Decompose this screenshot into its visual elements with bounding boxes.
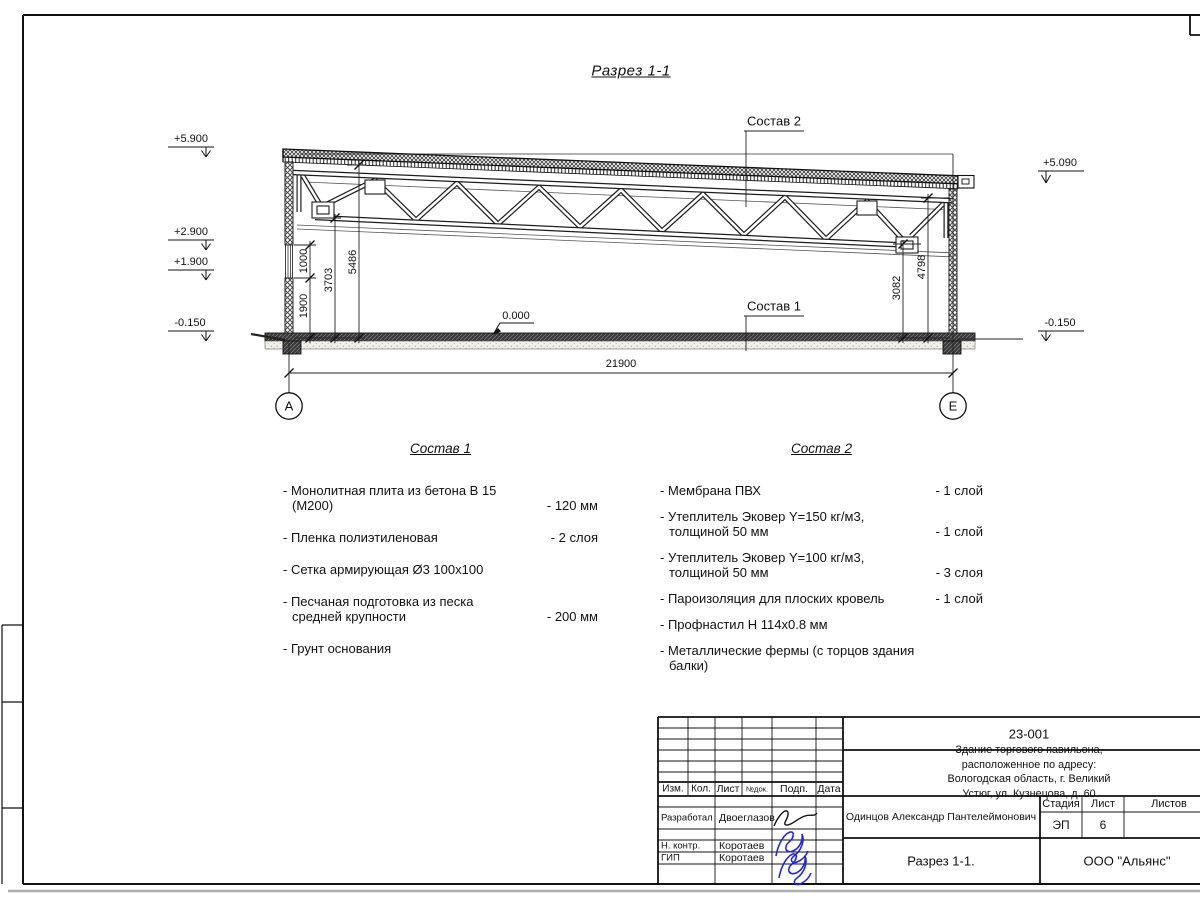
page-title: Разрез 1-1 bbox=[591, 63, 670, 80]
legend2-item: - Профнастил Н 114х0.8 мм bbox=[660, 617, 983, 632]
axis-bubbles bbox=[276, 393, 966, 419]
titleblock-col-list: Лист bbox=[717, 783, 740, 795]
composition2-callout: Состав 2 bbox=[747, 114, 801, 129]
titleblock-col-kol: Кол. bbox=[691, 784, 711, 795]
elevation-right-ground: -0.150 bbox=[1044, 317, 1075, 329]
axis-bubble-a-label: А bbox=[285, 399, 294, 414]
titleblock-author: Одинцов Александр Пантелеймонович bbox=[846, 811, 1036, 823]
titleblock-col-izm: Изм. bbox=[662, 784, 683, 795]
legend1-title: Состав 1 bbox=[283, 441, 598, 456]
titleblock-col-podp: Подп. bbox=[780, 783, 808, 795]
titleblock-sheets-label: Листов bbox=[1151, 798, 1187, 810]
titleblock-name-gip: Коротаев bbox=[719, 852, 764, 864]
titleblock-role-ncontrol: Н. контр. bbox=[661, 841, 700, 852]
signatures bbox=[774, 811, 817, 885]
legend-composition1: Состав 1 - Монолитная плита из бетона В … bbox=[283, 441, 598, 673]
titleblock-name-developer: Двоеглазов bbox=[719, 812, 775, 824]
floor-slab bbox=[251, 333, 1023, 354]
legend1-item: - Сетка армирующая Ø3 100х100 bbox=[283, 562, 598, 577]
elevation-left-window-top: +2.900 bbox=[174, 226, 208, 238]
titleblock-col-data: Дата bbox=[817, 783, 840, 795]
titleblock-sheet-title: Разрез 1-1. bbox=[907, 854, 974, 869]
titleblock-stage-value: ЭП bbox=[1052, 818, 1069, 832]
legend2-title: Состав 2 bbox=[660, 441, 983, 456]
legend2-item: - Пароизоляция для плоских кровель - 1 с… bbox=[660, 591, 983, 606]
legend1-item: - Пленка полиэтиленовая - 2 слоя bbox=[283, 530, 598, 545]
titleblock-role-gip: ГИП bbox=[661, 853, 680, 864]
titleblock-doc-number: 23-001 bbox=[1009, 727, 1049, 742]
titleblock-company: ООО "Альянс" bbox=[1084, 854, 1171, 869]
titleblock-sheet-value: 6 bbox=[1100, 818, 1107, 832]
dim-1900: 1900 bbox=[298, 294, 310, 318]
composition1-callout: Состав 1 bbox=[747, 299, 801, 314]
legend2-item: - Металлические фермы (с торцов здания б… bbox=[660, 643, 983, 673]
signature-gip bbox=[779, 854, 811, 885]
elevation-left-window-sill: +1.900 bbox=[174, 256, 208, 268]
roof-package bbox=[283, 149, 974, 189]
signature-developer bbox=[774, 811, 817, 826]
titleblock-project-description: Здание торгового павильона, расположенно… bbox=[944, 743, 1115, 801]
drawing-sheet: Разрез 1-1 Состав 2 Состав 1 0.000 +5.90… bbox=[0, 0, 1200, 900]
legend1-item: - Грунт основания bbox=[283, 641, 598, 656]
titleblock-col-ndok: №док. bbox=[746, 785, 768, 794]
titleblock-name-ncontrol: Коротаев bbox=[719, 840, 764, 852]
legend2-item: - Мембрана ПВХ - 1 слой bbox=[660, 483, 983, 498]
dim-1000: 1000 bbox=[298, 249, 310, 273]
dim-3703: 3703 bbox=[323, 268, 335, 292]
signature-ncontrol bbox=[776, 832, 808, 863]
elevation-left-roof: +5.900 bbox=[174, 133, 208, 145]
dim-5486: 5486 bbox=[347, 250, 359, 274]
elevation-right-roof: +5.090 bbox=[1043, 157, 1077, 169]
titleblock-stage-label: Стадия bbox=[1042, 798, 1080, 810]
titleblock-sheet-label: Лист bbox=[1091, 798, 1115, 810]
legend2-item: - Утеплитель Эковер Y=100 кг/м3, толщино… bbox=[660, 550, 983, 580]
legend2-item: - Утеплитель Эковер Y=150 кг/м3, толщино… bbox=[660, 509, 983, 539]
titleblock-role-developer: Разработал bbox=[661, 813, 713, 824]
legend1-item: - Монолитная плита из бетона В 15 (М200)… bbox=[283, 483, 598, 513]
dim-3082: 3082 bbox=[891, 276, 903, 300]
legend1-item: - Песчаная подготовка из песка средней к… bbox=[283, 594, 598, 624]
zero-level-label: 0.000 bbox=[502, 310, 530, 322]
legend-composition2: Состав 2 - Мембрана ПВХ - 1 слой - Утепл… bbox=[660, 441, 983, 684]
dim-4798: 4798 bbox=[916, 255, 928, 279]
axis-bubble-e-label: Е bbox=[949, 399, 958, 414]
elevation-left-ground: -0.150 bbox=[174, 317, 205, 329]
dim-total-span: 21900 bbox=[606, 358, 637, 370]
